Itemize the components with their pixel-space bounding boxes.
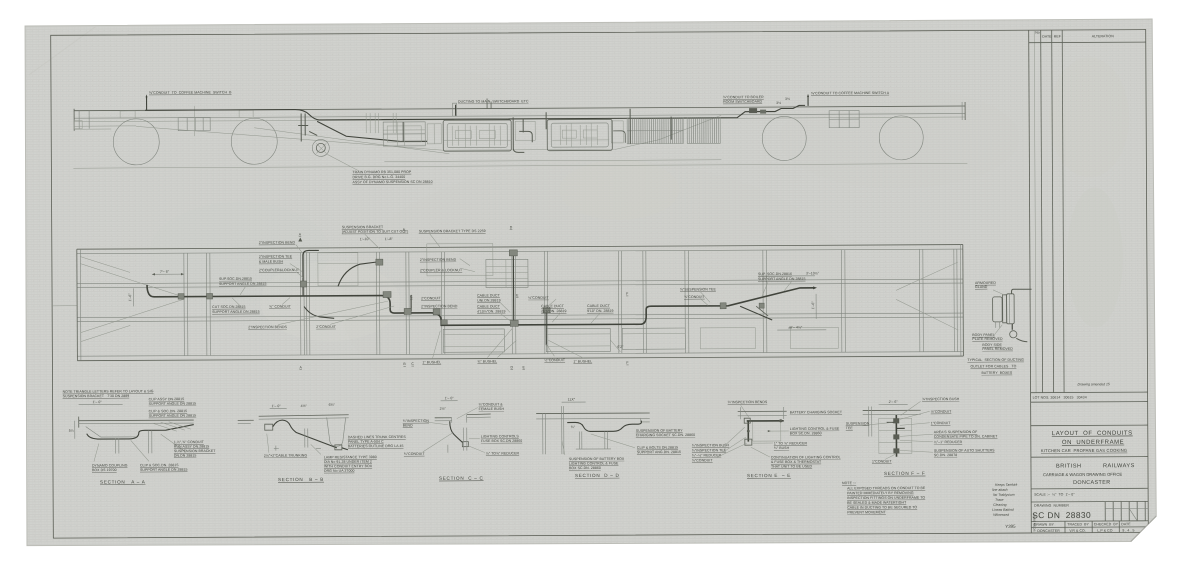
svg-text:CHECKED BY: CHECKED BY (1094, 522, 1119, 526)
svg-text:SECTION D – D: SECTION D – D (575, 473, 620, 478)
svg-text:BOX SC.DN. 28860: BOX SC.DN. 28860 (569, 466, 601, 470)
svg-text:BEND: BEND (403, 423, 413, 427)
svg-text:1'–6": 1'–6" (811, 301, 815, 310)
svg-text:±6'– 4½": ±6'– 4½" (788, 325, 803, 329)
svg-text:ON UNDERFRAME: ON UNDERFRAME (1062, 440, 1124, 446)
svg-text:4½": 4½" (301, 404, 308, 408)
svg-text:½" TO¾" REDUCER: ½" TO¾" REDUCER (486, 451, 520, 455)
svg-text:1" TO ¾" REDUCER: 1" TO ¾" REDUCER (774, 441, 808, 445)
svg-text:¾"INSPECTION TEE: ¾"INSPECTION TEE (692, 448, 727, 452)
svg-text:¾" BUSH: ¾" BUSH (774, 446, 790, 450)
svg-text:2"COUPLER & LOCKNUT: 2"COUPLER & LOCKNUT (420, 268, 463, 272)
svg-text:FEMALE BUSH: FEMALE BUSH (479, 407, 505, 411)
svg-text:BATTERY BOXES: BATTERY BOXES (981, 371, 1012, 375)
svg-text:6'2": 6'2" (617, 345, 624, 349)
svg-text:Keeps Tamkirk: Keeps Tamkirk (995, 483, 1018, 487)
svg-text:C: C (410, 295, 413, 299)
svg-text:¾" BUSHEL: ¾" BUSHEL (477, 359, 497, 363)
svg-text:No: No (1035, 31, 1040, 35)
svg-text:NOTE :−: NOTE :− (842, 481, 856, 485)
svg-text:¾"INSPECTION BUSH: ¾"INSPECTION BUSH (692, 443, 730, 447)
svg-text:1'–10": 1'–10" (360, 237, 371, 241)
svg-text:2'– 6": 2'– 6" (889, 400, 899, 404)
svg-text:½"–1" REDUCER: ½"–1" REDUCER (934, 440, 963, 444)
svg-text:26'6"DN. 28819: 26'6"DN. 28819 (541, 309, 566, 313)
svg-text:2"INSPECTION BENDS: 2"INSPECTION BENDS (248, 325, 287, 329)
svg-text:¾"CONDUIT: ¾"CONDUIT (404, 452, 425, 456)
svg-text:9 . 4 . 5: 9 . 4 . 5 (1122, 528, 1134, 532)
svg-text:BOX SC.DN. 28860: BOX SC.DN. 28860 (790, 431, 822, 435)
svg-text:½"CONDUIT: ½"CONDUIT (544, 358, 565, 362)
svg-text:SUPPORT ANGLE DN.28815: SUPPORT ANGLE DN.28815 (212, 310, 260, 314)
svg-text:¾"SUSPENSION TEE: ¾"SUSPENSION TEE (680, 287, 716, 291)
svg-text:PAINTED IMMEDIATELY BY REMO: PAINTED IMMEDIATELY BY REMOVING (847, 491, 914, 495)
svg-text:ALTERATION: ALTERATION (1092, 34, 1114, 38)
svg-text:⅜"CONDUIT TO COFFEE MACHINE: ⅜"CONDUIT TO COFFEE MACHINE SWITCH B (149, 90, 232, 94)
svg-text:SUSPENSION BRACKET TYPE DS 2: SUSPENSION BRACKET TYPE DS 2259 (419, 229, 486, 233)
svg-text:3½: 3½ (785, 97, 790, 101)
svg-text:REF: REF (1054, 35, 1061, 39)
svg-text:3½: 3½ (776, 101, 781, 105)
svg-text:SUPPORT ANGLE DN 28815: SUPPORT ANGLE DN 28815 (140, 468, 188, 472)
svg-text:Trace: Trace (995, 498, 1004, 502)
svg-text:PLATE REMOVED: PLATE REMOVED (972, 337, 1003, 341)
svg-text:SUPPORT ANGLE DN 28815: SUPPORT ANGLE DN 28815 (149, 414, 197, 418)
svg-text:GLAND: GLAND (975, 285, 988, 289)
svg-text:SECTION C – C: SECTION C – C (439, 476, 484, 481)
svg-text:SECTION B – B: SECTION B – B (278, 477, 324, 482)
svg-text:4'10½"DN. 28819: 4'10½"DN. 28819 (477, 309, 505, 313)
svg-text:LIGHTING CONTROL & FUSE: LIGHTING CONTROL & FUSE (790, 427, 840, 431)
svg-text:1'– 0": 1'– 0" (445, 396, 455, 400)
svg-text:PANEL REMOVED: PANEL REMOVED (982, 347, 1013, 351)
svg-text:OUTLET FOR CABLES TO: OUTLET FOR CABLES TO (970, 364, 1016, 368)
svg-text:¾"CONDUIT: ¾"CONDUIT (684, 295, 705, 299)
svg-text:UNI.DN.28819: UNI.DN.28819 (477, 298, 501, 302)
svg-text:½"CONDUIT: ½"CONDUIT (931, 410, 952, 414)
svg-text:DATE: DATE (1042, 35, 1052, 39)
svg-text:DYNAMO COUPLING: DYNAMO COUPLING (92, 463, 128, 467)
svg-text:SUPPORT ANG.DN. 28815: SUPPORT ANG.DN. 28815 (637, 450, 681, 454)
svg-text:CARRIAGE & WAGON DRAWING OFFIC: CARRIAGE & WAGON DRAWING OFFICE (1043, 472, 1122, 477)
svg-text:SECTION A – A: SECTION A – A (100, 479, 146, 484)
svg-text:(ADJUST POSITION TO SUIT CUT O: (ADJUST POSITION TO SUIT CUT OUT) (342, 229, 409, 233)
svg-text:2½"×2"CABLE TRUNKING: 2½"×2"CABLE TRUNKING (264, 453, 307, 457)
svg-text:SUP. SOC.DN.28816: SUP. SOC.DN.28816 (758, 272, 792, 276)
svg-text:TEE: TEE (846, 426, 854, 430)
svg-text:Drawing amended 15: Drawing amended 15 (1078, 382, 1110, 386)
svg-text:SUSPENSION BRACKET: SUSPENSION BRACKET (174, 449, 216, 453)
svg-text:CABLE DUCT: CABLE DUCT (541, 304, 565, 308)
svg-text:D: D (510, 365, 513, 369)
svg-text:CUT SOC.DN.28815: CUT SOC.DN.28815 (212, 305, 245, 309)
svg-text:1,½",¾" CONDUIT: 1,½",¾" CONDUIT (174, 440, 205, 444)
svg-text:SUPPORT ANGLE DN 28815: SUPPORT ANGLE DN 28815 (149, 402, 197, 406)
svg-text:1" BUSHEL: 1" BUSHEL (573, 359, 592, 363)
svg-text:CABLE IN DUCTING TO BE SEC: CABLE IN DUCTING TO BE SECURED TO (847, 505, 917, 509)
svg-text:ALL EXPOSED THREADS ON CONDU: ALL EXPOSED THREADS ON CONDUIT TO BE (847, 486, 926, 490)
svg-text:2"COUPLER&LOCKNUT: 2"COUPLER&LOCKNUT (259, 268, 300, 272)
svg-text:TYPICAL SECTION OF DUCTING: TYPICAL SECTION OF DUCTING (967, 358, 1024, 362)
svg-text:¾"INSPECTION BUSH: ¾"INSPECTION BUSH (922, 397, 960, 401)
svg-text:BATTERIES OUTLINE DRG LA 45: BATTERIES OUTLINE DRG LA 45 (348, 444, 404, 448)
svg-text:½"CONDUIT: ½"CONDUIT (528, 296, 549, 300)
svg-text:2"CONDUIT: 2"CONDUIT (421, 296, 441, 300)
svg-text:DRAWING NUMBER: DRAWING NUMBER (1034, 503, 1069, 507)
svg-text:1"CONDUIT: 1"CONDUIT (931, 421, 951, 425)
svg-text:7'– 6": 7'– 6" (160, 270, 170, 274)
svg-text:L.P & CO: L.P & CO (1097, 529, 1112, 533)
svg-text:2"CONDUIT: 2"CONDUIT (316, 325, 336, 329)
svg-text:DONCASTER: DONCASTER (1037, 529, 1060, 533)
svg-text:¾"CONDUIT: ¾"CONDUIT (692, 458, 713, 462)
svg-text:2½": 2½" (440, 407, 447, 411)
svg-text:TRAIN DYNAMO RB 351,080 PRO: TRAIN DYNAMO RB 351,080 PROP (352, 170, 411, 174)
svg-text:SCALE :− ¼" TO 1'– 0": SCALE :− ¼" TO 1'– 0" (1034, 492, 1075, 496)
svg-text:Y395: Y395 (1005, 524, 1016, 529)
svg-text:LAYOUT OF CONDUITS: LAYOUT OF CONDUITS (1052, 431, 1133, 437)
svg-text:1" BUSHEL: 1" BUSHEL (422, 360, 441, 364)
svg-text:V.R & CO.: V.R & CO. (1069, 529, 1086, 533)
svg-text:CABLE DUCT: CABLE DUCT (477, 304, 501, 308)
svg-text:¾": ¾" (571, 425, 576, 429)
svg-text:list Trablysium: list Trablysium (993, 493, 1015, 497)
svg-text:2"INSPECTION BEND: 2"INSPECTION BEND (420, 258, 457, 262)
svg-text:3'–10½": 3'–10½" (806, 271, 820, 275)
svg-text:11Ⅹ": 11Ⅹ" (568, 398, 576, 402)
svg-text:DRG No UA 37000: DRG No UA 37000 (324, 469, 355, 473)
svg-text:line attach: line attach (992, 488, 1008, 492)
svg-text:DRAWN BY: DRAWN BY (1034, 523, 1055, 527)
svg-text:Cleaning: Cleaning (993, 503, 1007, 507)
svg-text:DUCTING TO MAIN SWITCHBOARD: DUCTING TO MAIN SWITCHBOARD ETC (458, 99, 529, 103)
svg-text:BRITISH: BRITISH (1056, 463, 1082, 469)
svg-text:& FUSE BOX & THERMOSTAT: & FUSE BOX & THERMOSTAT (771, 460, 822, 464)
svg-text:SECTION F – F: SECTION F – F (884, 471, 926, 476)
svg-text:9'10" DN. 28819: 9'10" DN. 28819 (587, 309, 613, 313)
svg-text:THAT UNIT TO BE USED: THAT UNIT TO BE USED (771, 464, 813, 468)
svg-text:SUPPORT ANGLE DN 28815: SUPPORT ANGLE DN 28815 (758, 277, 806, 281)
svg-text:SUP.SOC.DN.28815: SUP.SOC.DN.28815 (219, 277, 252, 281)
svg-text:INSPECTION FITTINGS ON UNDERF: INSPECTION FITTINGS ON UNDERFRAME TO (847, 496, 925, 500)
svg-text:Witnessed: Witnessed (993, 513, 1009, 517)
svg-text:DONCASTER: DONCASTER (1073, 480, 1110, 486)
svg-text:CABLE DUCT: CABLE DUCT (477, 293, 501, 297)
svg-text:TRACED BY: TRACED BY (1067, 522, 1089, 526)
svg-text:⅜"CONDUIT TO COFFEE MACHINE SW: ⅜"CONDUIT TO COFFEE MACHINE SWITCH A (811, 91, 890, 95)
svg-text:¾"CONDUIT &: ¾"CONDUIT & (479, 402, 504, 406)
svg-text:SC DN 28830: SC DN 28830 (1032, 514, 1036, 532)
svg-text:DRIVE B.G. DRG No L.G. 344: DRIVE B.G. DRG No L.G. 34400 (352, 175, 405, 179)
svg-text:BOX DS 19700: BOX DS 19700 (92, 468, 117, 472)
svg-text:WITH CONDUIT ENTRY BOX: WITH CONDUIT ENTRY BOX (324, 464, 373, 468)
svg-text:SECTION E – E: SECTION E – E (747, 473, 791, 478)
svg-text:1'– 0": 1'– 0" (272, 404, 282, 408)
svg-text:CHARGING SOCKET SC.DN. 28860: CHARGING SOCKET SC.DN. 28860 (636, 433, 695, 437)
svg-text:D: D (510, 225, 513, 229)
svg-text:SC DN 28830: SC DN 28830 (1032, 510, 1091, 520)
svg-text:1"CONDUIT: 1"CONDUIT (872, 459, 892, 463)
svg-text:LIGHTING CONTROL & FUSE: LIGHTING CONTROL & FUSE (569, 461, 619, 465)
svg-text:SUSPENSION BRACKET 7'30 DN 2: SUSPENSION BRACKET 7'30 DN 2889 (63, 394, 130, 398)
svg-text:DATE: DATE (1121, 522, 1131, 526)
svg-text:ASSY OF DYNAMO SUSPENSION SC: ASSY OF DYNAMO SUSPENSION SC DN 28810 (352, 180, 432, 184)
svg-text:CABLE DUCT: CABLE DUCT (587, 304, 611, 308)
svg-text:F: F (626, 361, 628, 365)
svg-text:1'– 0": 1'– 0" (93, 400, 103, 404)
svg-text:Lineas Battind: Lineas Battind (992, 508, 1014, 512)
svg-text:CONDENSATE PIPE TO DN. CABINET: CONDENSATE PIPE TO DN. CABINET (934, 434, 998, 438)
svg-text:1'–6": 1'–6" (128, 293, 132, 302)
svg-text:SC.DN. 28878: SC.DN. 28878 (934, 453, 957, 457)
svg-text:2"INSPECTION BEND: 2"INSPECTION BEND (259, 241, 296, 245)
svg-text:¾"INSPECTION BENDS: ¾"INSPECTION BENDS (728, 400, 768, 404)
svg-text:SUPPORT ANGLE DN 28815: SUPPORT ANGLE DN 28815 (219, 282, 267, 286)
svg-text:¾"–½" REDUCER: ¾"–½" REDUCER (692, 453, 722, 457)
svg-text:1'–8": 1'–8" (385, 237, 394, 241)
svg-text:LOT NOS. 30614 30615 30434: LOT NOS. 30614 30615 30434 (1033, 395, 1087, 399)
svg-text:2"INSPECTION BEND: 2"INSPECTION BEND (421, 304, 458, 308)
svg-text:5¼: 5¼ (69, 429, 74, 433)
svg-text:SUSPENSION OF AUTO SHUTTERS: SUSPENSION OF AUTO SHUTTERS (934, 448, 995, 452)
svg-text:& MALE BUSH: & MALE BUSH (259, 260, 284, 264)
svg-text:F: F (626, 292, 628, 296)
svg-text:RAILWAYS: RAILWAYS (1103, 463, 1135, 469)
svg-text:6¾": 6¾" (329, 403, 336, 407)
svg-text:BATTERY CHARGING SOCKET: BATTERY CHARGING SOCKET (790, 410, 843, 414)
svg-text:KITCHEN CAR PROPANE GAS COOKI: KITCHEN CAR PROPANE GAS COOKING (1041, 448, 1127, 453)
svg-text:¾" CONDUIT: ¾" CONDUIT (269, 305, 291, 309)
svg-text:2"INSPECTION TEE: 2"INSPECTION TEE (259, 255, 293, 259)
svg-text:PREVENT MOVEMENT: PREVENT MOVEMENT (847, 510, 886, 514)
svg-text:DN.DN 28815: DN.DN 28815 (174, 454, 196, 458)
svg-text:ROOM SWITCHBOARD: ROOM SWITCHBOARD (723, 100, 763, 104)
svg-text:BE SEALED & MADE WATERTIGHT: BE SEALED & MADE WATERTIGHT (847, 501, 907, 505)
svg-text:FUSE BOX SC.DN 28860: FUSE BOX SC.DN 28860 (481, 439, 522, 443)
svg-text:C: C (411, 362, 414, 366)
svg-text:¾"INSPECTION: ¾"INSPECTION (403, 419, 430, 423)
svg-text:DASHED LINES TRUNK CENTRES: DASHED LINES TRUNK CENTRES (348, 435, 407, 439)
